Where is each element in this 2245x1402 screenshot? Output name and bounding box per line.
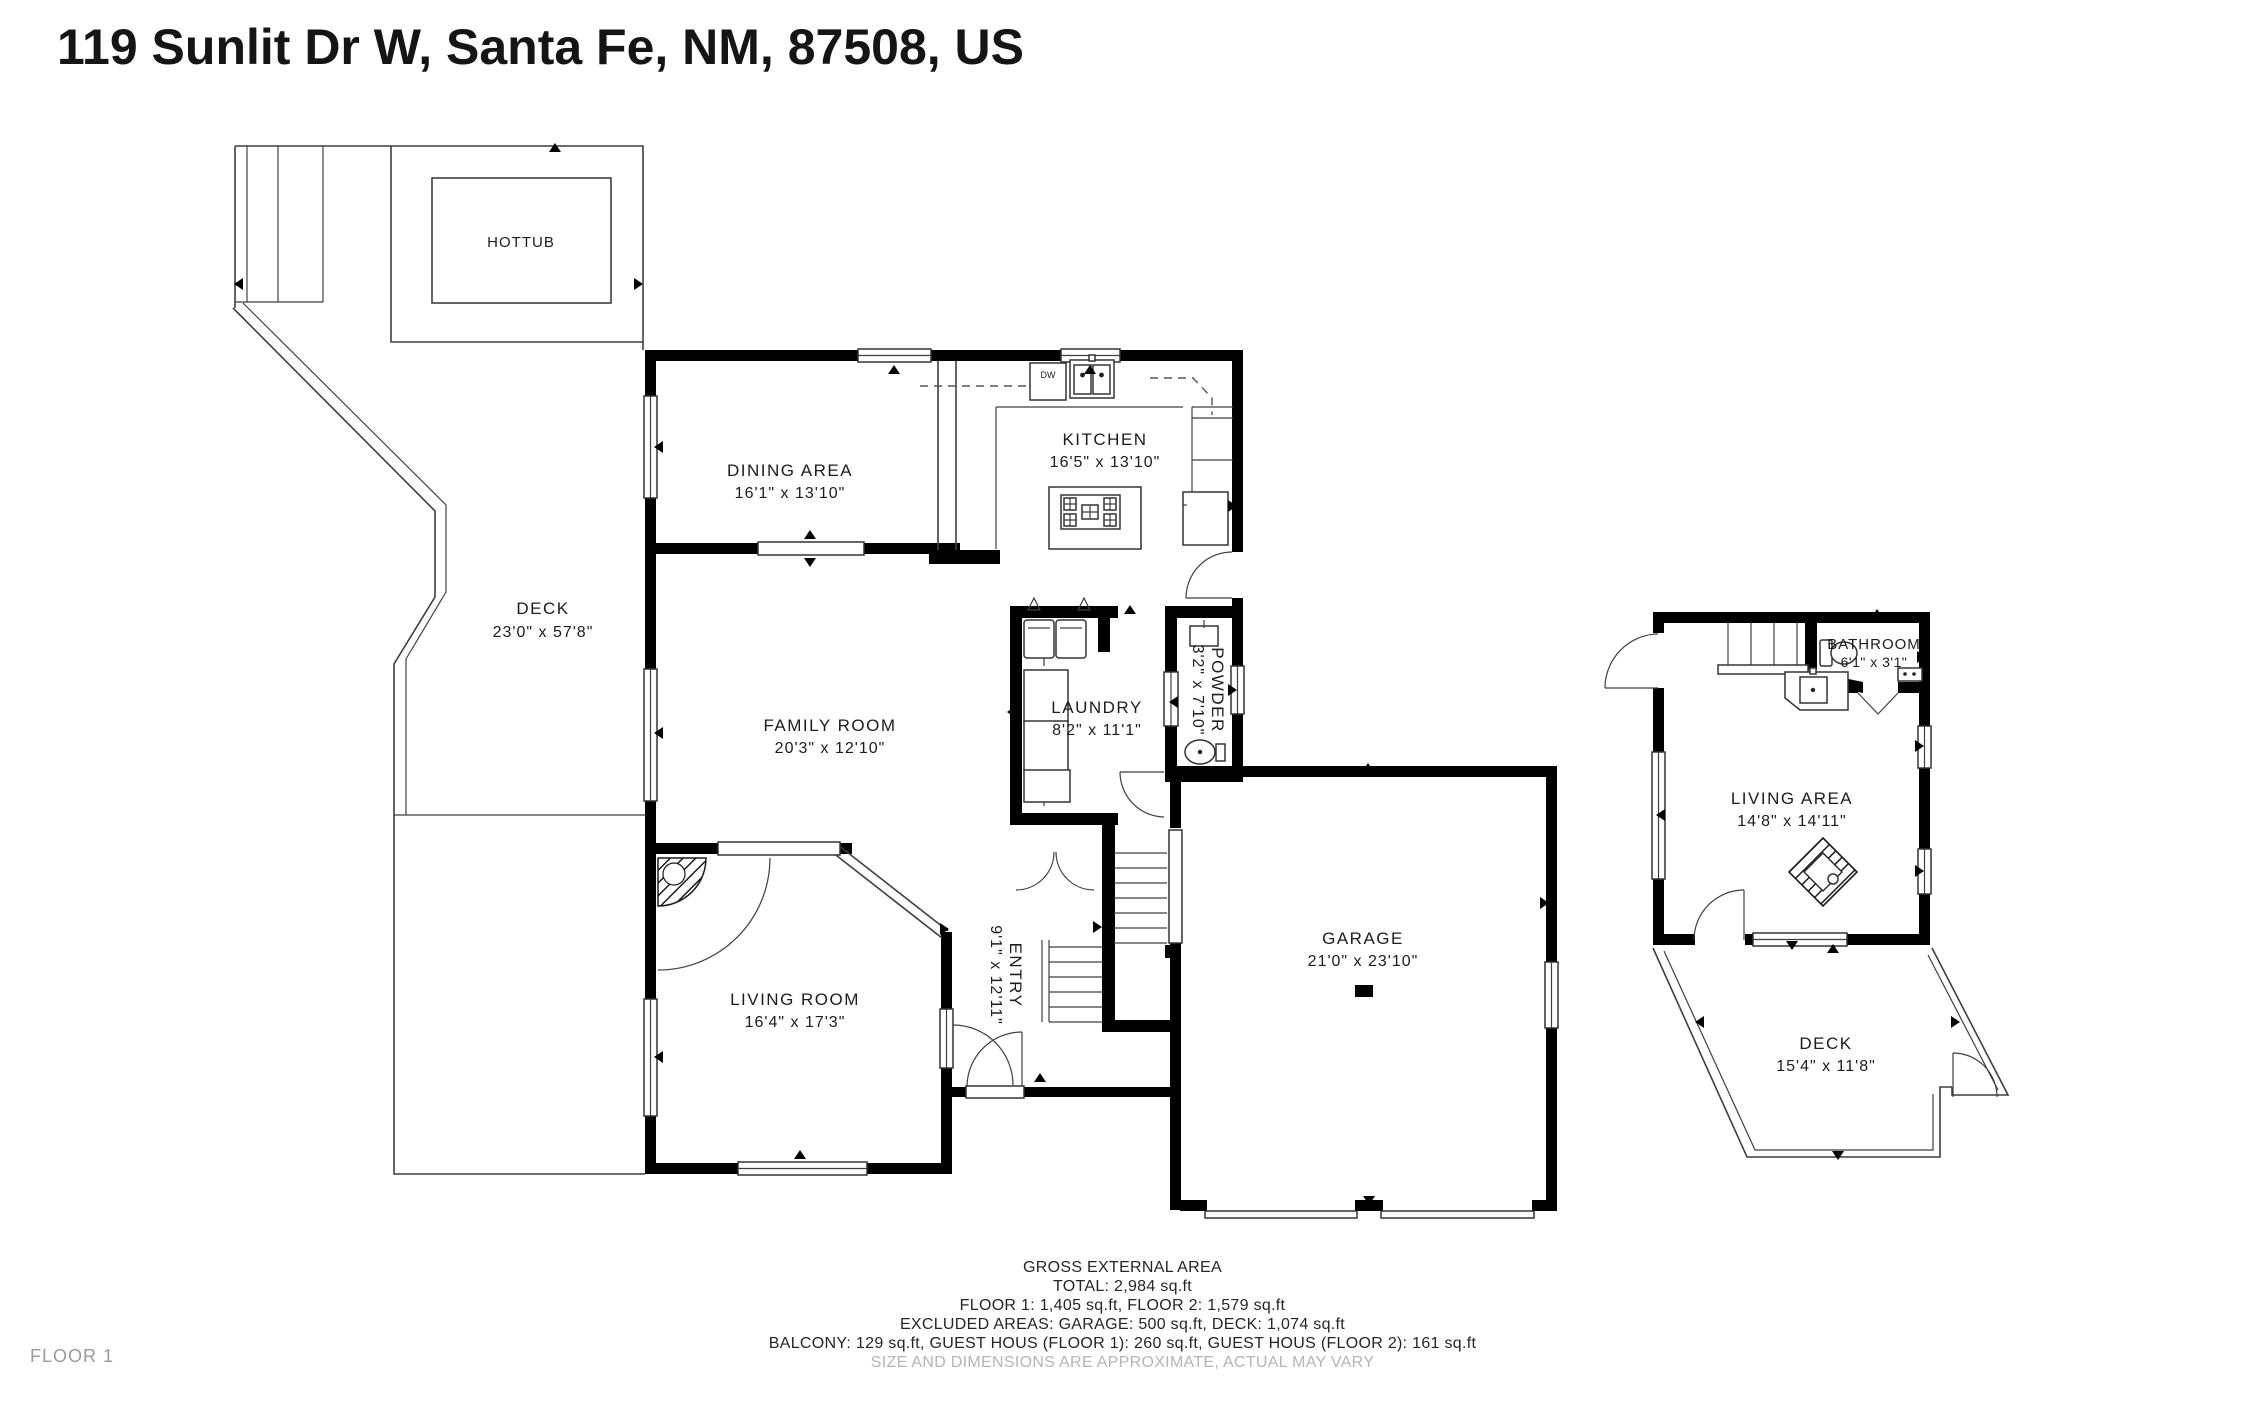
room-label-guest-bath: BATHROOM xyxy=(1827,636,1921,653)
door-swing xyxy=(1186,552,1232,598)
room-label-family: FAMILY ROOM xyxy=(763,716,896,735)
main-deck-outline xyxy=(233,146,645,1174)
summary-disclaimer: SIZE AND DIMENSIONS ARE APPROXIMATE, ACT… xyxy=(0,1353,2245,1372)
summary-total: TOTAL: 2,984 sq.ft xyxy=(0,1277,2245,1296)
window xyxy=(1753,933,1847,946)
hottub: HOTTUB xyxy=(432,178,611,303)
entry-side-door-swing xyxy=(953,1025,1013,1085)
room-dims-living: 16'4" x 17'3" xyxy=(745,1014,846,1031)
room-dims-kitchen: 16'5" x 13'10" xyxy=(1050,454,1161,471)
door-swing xyxy=(1694,890,1744,940)
door-swing xyxy=(1120,772,1164,817)
guest-house-doors xyxy=(1605,634,1898,940)
room-label-guest-living: LIVING AREA xyxy=(1731,789,1853,808)
room-dims-dining: 16'1" x 13'10" xyxy=(735,485,846,502)
refrigerator-icon xyxy=(1183,492,1228,545)
guest-house-stairs xyxy=(1718,623,1808,674)
room-dims-guest-deck: 15'4" x 11'8" xyxy=(1776,1058,1876,1075)
room-label-dining: DINING AREA xyxy=(727,461,853,480)
summary-heading: GROSS EXTERNAL AREA xyxy=(0,1258,2245,1277)
room-dims-family: 20'3" x 12'10" xyxy=(775,740,886,757)
dishwasher: DW xyxy=(1030,363,1066,400)
hottub-label: HOTTUB xyxy=(487,234,555,251)
room-label-guest-deck: DECK xyxy=(1799,1034,1852,1053)
window xyxy=(644,669,657,801)
double-door-swing xyxy=(1016,852,1094,890)
kitchen-sink-icon xyxy=(1070,355,1114,398)
room-dims-laundry: 8'2" x 11'1" xyxy=(1052,722,1142,739)
door-swing xyxy=(1605,634,1658,688)
floor-label: FLOOR 1 xyxy=(30,1346,114,1367)
front-door-swing xyxy=(967,1032,1022,1087)
window xyxy=(1545,962,1558,1028)
floor-plan: HOTTUB xyxy=(0,0,2245,1402)
area-summary: GROSS EXTERNAL AREA TOTAL: 2,984 sq.ft F… xyxy=(0,1258,2245,1372)
front-door-threshold xyxy=(966,1086,1024,1098)
room-dims-entry: 9'1" x 12'11" xyxy=(987,925,1004,1025)
fireplace-icon xyxy=(658,858,770,970)
room-label-living: LIVING ROOM xyxy=(730,990,860,1009)
guest-house-fixtures xyxy=(1785,640,1922,906)
room-label-powder: POWDER xyxy=(1208,647,1227,733)
window xyxy=(858,349,931,362)
dishwasher-label: DW xyxy=(1041,370,1056,380)
toilet-icon xyxy=(1185,740,1225,764)
kitchen-island xyxy=(1049,487,1141,549)
room-dims-guest-living: 14'8" x 14'11" xyxy=(1737,813,1846,830)
room-dims-garage: 21'0" x 23'10" xyxy=(1308,953,1419,970)
room-label-garage: GARAGE xyxy=(1322,929,1404,948)
cased-opening xyxy=(718,842,840,855)
room-label-kitchen: KITCHEN xyxy=(1062,430,1147,449)
garage-door-sill xyxy=(1381,1211,1534,1218)
room-dims-deck: 23'0" x 57'8" xyxy=(493,624,594,641)
kitchen-divider xyxy=(938,361,956,550)
kitchenette-sink-icon xyxy=(1785,668,1848,710)
room-dims-powder: 3'2" x 7'10" xyxy=(1189,645,1206,736)
entry-stairs xyxy=(953,852,1167,1087)
powder-sink-icon xyxy=(1190,620,1218,646)
summary-excluded: EXCLUDED AREAS: GARAGE: 500 sq.ft, DECK:… xyxy=(0,1315,2245,1334)
room-label-entry: ENTRY xyxy=(1006,943,1025,1008)
summary-other: BALCONY: 129 sq.ft, GUEST HOUS (FLOOR 1)… xyxy=(0,1334,2245,1353)
room-label-deck: DECK xyxy=(516,599,569,618)
window xyxy=(940,1009,953,1068)
stair-hall-boundary xyxy=(1169,830,1182,943)
bathroom-door-v xyxy=(1858,693,1898,714)
guest-house-windows xyxy=(1652,726,1931,946)
cased-opening xyxy=(758,542,864,555)
room-dims-guest-bath: 6'1" x 3'1" xyxy=(1841,654,1908,670)
window xyxy=(738,1162,867,1175)
wood-stove-icon xyxy=(1789,838,1857,906)
garage-door-sill xyxy=(1205,1211,1357,1218)
summary-floors: FLOOR 1: 1,405 sq.ft, FLOOR 2: 1,579 sq.… xyxy=(0,1296,2245,1315)
living-room-diagonal xyxy=(832,845,948,938)
room-label-laundry: LAUNDRY xyxy=(1051,698,1142,717)
